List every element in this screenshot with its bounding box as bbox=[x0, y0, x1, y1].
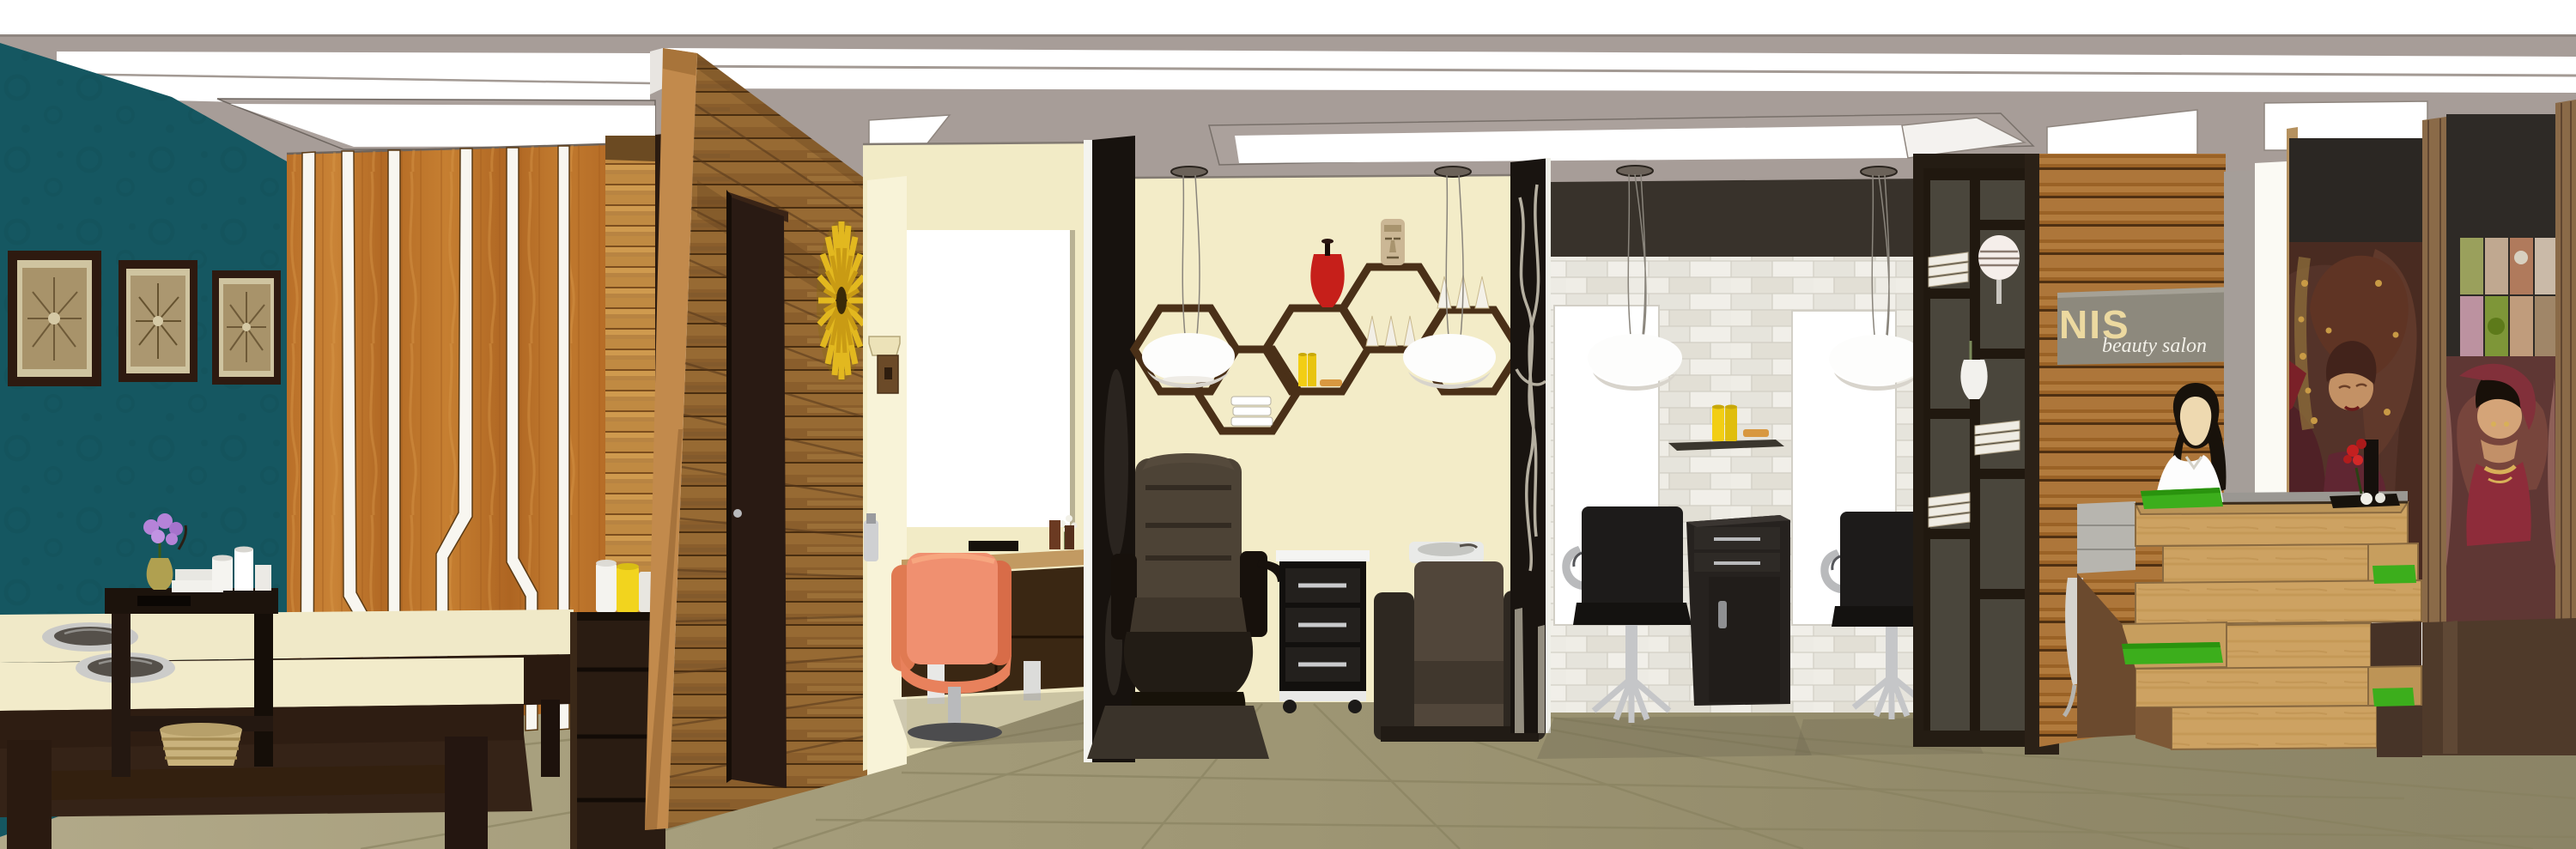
svg-text:beauty salon: beauty salon bbox=[2102, 335, 2207, 357]
